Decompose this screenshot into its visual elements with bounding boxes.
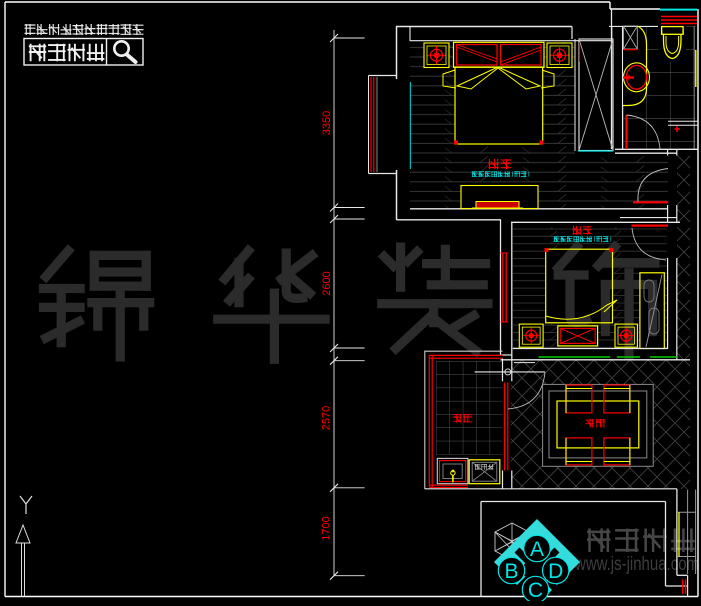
svg-text:2600: 2600 (321, 271, 333, 295)
svg-text:1700: 1700 (321, 516, 333, 540)
svg-text:A: A (530, 538, 544, 561)
svg-text:C: C (528, 579, 543, 601)
svg-text:B: B (504, 560, 518, 583)
svg-text:www.js-jinhua.com: www.js-jinhua.com (574, 554, 699, 575)
svg-text:2570: 2570 (321, 406, 333, 430)
svg-text:D: D (548, 560, 563, 583)
svg-text:3350: 3350 (321, 111, 333, 135)
